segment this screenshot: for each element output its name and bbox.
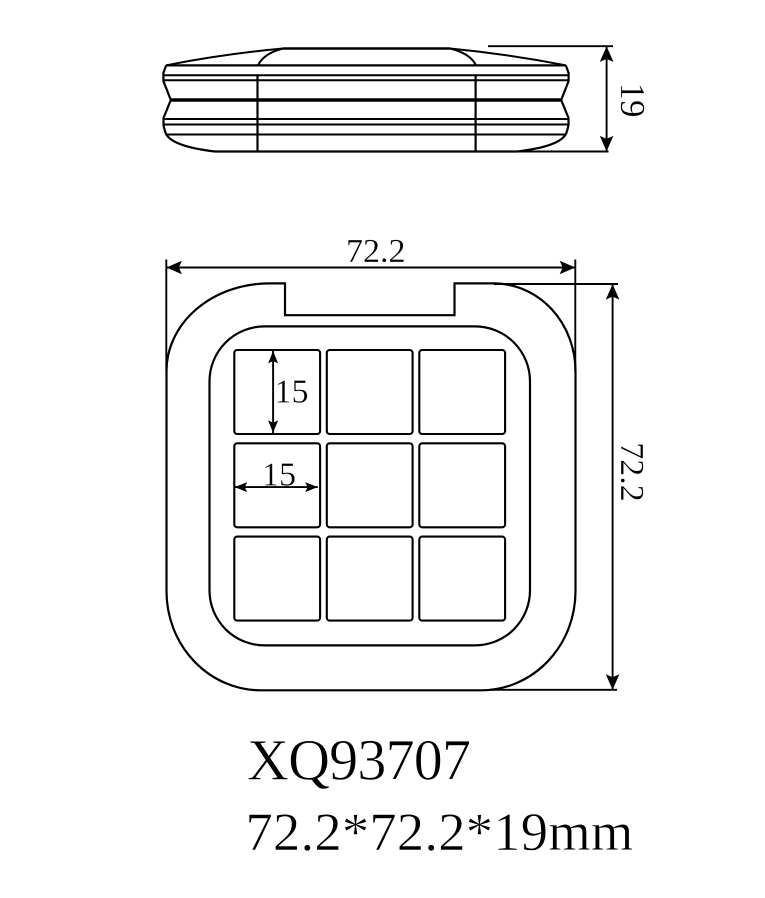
svg-text:XQ93707: XQ93707: [247, 728, 470, 793]
svg-text:72.2*72.2*19mm: 72.2*72.2*19mm: [246, 801, 634, 862]
svg-text:15: 15: [275, 374, 309, 411]
svg-text:72.2: 72.2: [613, 442, 650, 502]
svg-text:19: 19: [613, 83, 652, 118]
svg-text:72.2: 72.2: [346, 233, 406, 270]
svg-text:15: 15: [262, 456, 296, 493]
